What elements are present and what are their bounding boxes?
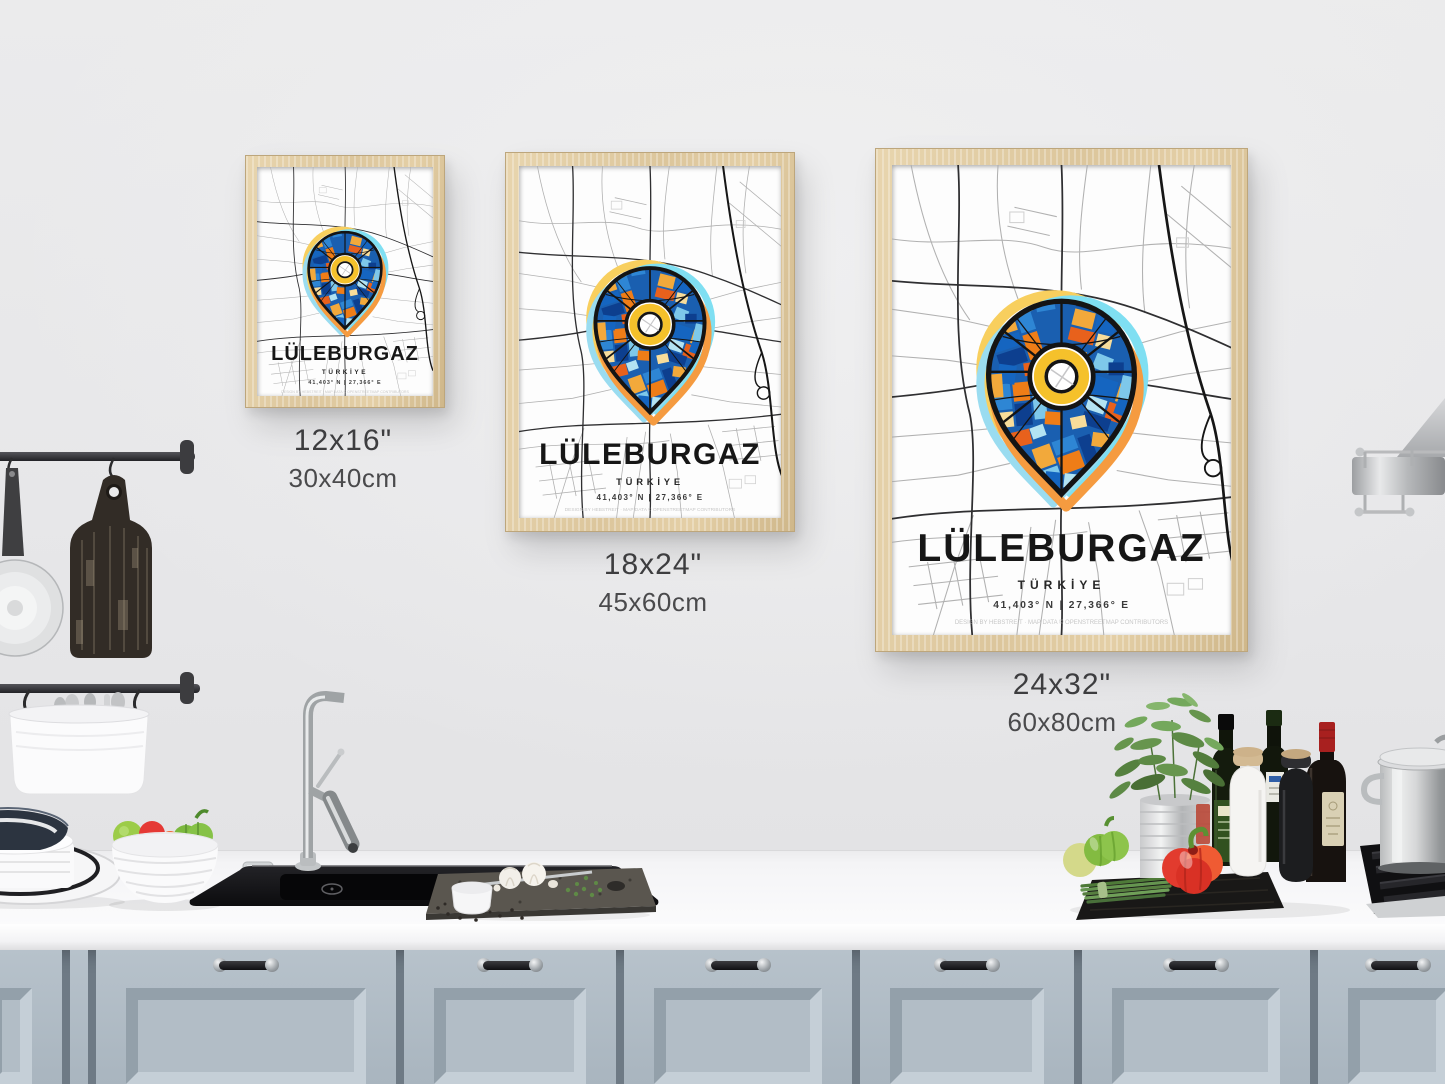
cabinet-handle — [1163, 958, 1229, 972]
kitchen-props — [0, 370, 1445, 950]
wooden-cutting-board — [70, 475, 152, 658]
wall-rail-upper — [0, 440, 195, 478]
cabinet-door — [0, 950, 62, 1084]
cabinet-door — [96, 950, 396, 1084]
cabinet-door — [1318, 950, 1445, 1084]
cabinet-handle — [477, 958, 543, 972]
cabinet-door — [860, 950, 1074, 1084]
faucet — [295, 696, 358, 871]
cabinet-door — [624, 950, 852, 1084]
green-bell-pepper — [1084, 818, 1129, 866]
cabinet-handle — [934, 958, 1000, 972]
poster-print: LÜLEBURGAZ TÜRKİYE 41,403° N | 27,366° E… — [257, 167, 433, 396]
cabinet-row — [0, 950, 1445, 1084]
cabinet-door — [1082, 950, 1310, 1084]
cabinet-handle — [1365, 958, 1431, 972]
range-hood — [1352, 398, 1445, 517]
cabinet-handle — [213, 958, 279, 972]
herb-foliage — [1107, 691, 1227, 801]
right-counter-group — [1063, 691, 1350, 920]
cabinet-handle — [705, 958, 771, 972]
frying-pan — [0, 468, 63, 656]
cabinet-stile — [70, 950, 88, 1084]
kitchen-scene: LÜLEBURGAZ TÜRKİYE 41,403° N | 27,366° E… — [0, 0, 1445, 1084]
cabinet-door — [404, 950, 616, 1084]
utensil-holder — [9, 692, 149, 794]
stacked-plates — [0, 808, 125, 909]
poster-city-title: LÜLEBURGAZ — [257, 344, 433, 365]
